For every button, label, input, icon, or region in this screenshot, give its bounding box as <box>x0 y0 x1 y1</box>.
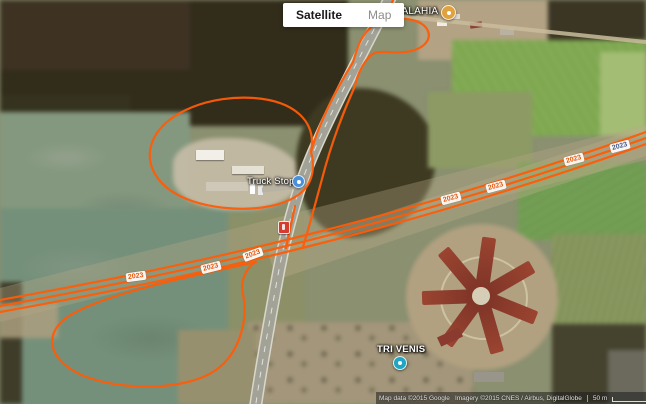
satellite-toggle-button[interactable]: Satellite <box>296 8 342 22</box>
gps-track-loop-truckstop <box>150 98 313 209</box>
poi-label-truck-stop[interactable]: Truck Stop <box>247 176 295 187</box>
gps-track-group[interactable] <box>0 0 646 387</box>
map-type-control: Satellite Map <box>283 3 404 27</box>
restaurant-poi-icon[interactable] <box>441 5 456 20</box>
dirt-road <box>398 16 646 42</box>
highway-embankment-bright <box>268 126 646 280</box>
teal-poi-icon[interactable] <box>393 356 407 370</box>
attribution-bar: Map data ©2015 Google Imagery ©2015 CNES… <box>376 392 646 404</box>
scale-bar <box>612 397 646 402</box>
satellite-map-canvas[interactable]: 2023 2023 2023 2023 2023 2023 2023 Resta… <box>0 0 646 404</box>
scale-value: 50 m <box>593 395 607 402</box>
poi-label-tri-venis[interactable]: TRI VENIS <box>377 344 425 355</box>
imagery-credit: Imagery ©2015 CNES / Airbus, DigitalGlob… <box>455 395 582 402</box>
attribution-divider <box>587 395 588 402</box>
map-data-credit: Map data ©2015 Google <box>379 395 450 402</box>
roads-and-tracks-overlay <box>0 0 646 404</box>
road-shield-icon <box>278 221 290 234</box>
map-toggle-button[interactable]: Map <box>368 8 391 22</box>
highway-embankment <box>0 124 646 322</box>
blue-poi-icon[interactable] <box>292 175 305 188</box>
